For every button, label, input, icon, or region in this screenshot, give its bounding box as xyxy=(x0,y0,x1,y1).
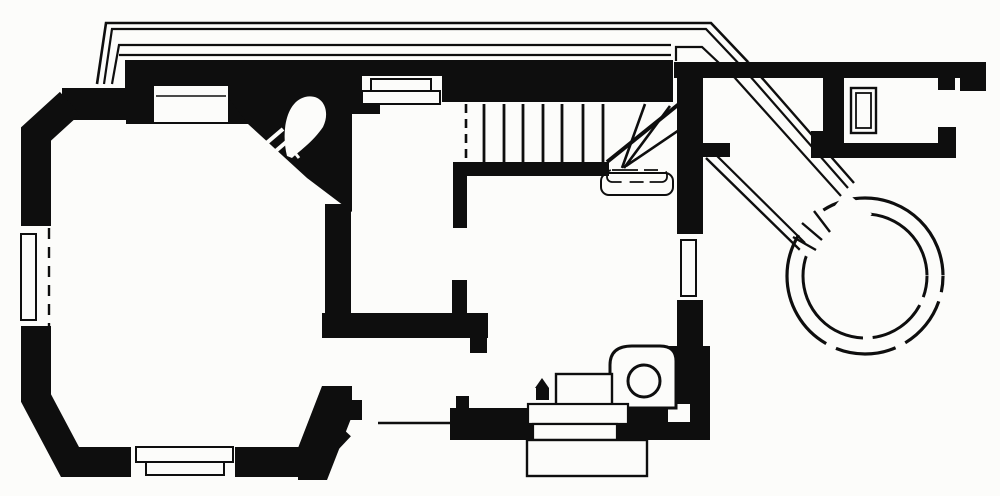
under-stair-wall xyxy=(453,162,609,176)
wing-top-wall xyxy=(674,62,986,78)
turret xyxy=(787,192,943,354)
left-window-frame xyxy=(21,234,36,320)
partition-stub-down xyxy=(470,338,487,353)
scullery-bench xyxy=(556,374,612,407)
right-wall-lower xyxy=(677,300,703,350)
entrance-step-lower xyxy=(362,91,440,104)
walls xyxy=(36,60,986,480)
small-fitting-top xyxy=(535,378,549,388)
wing-corner-stub xyxy=(938,127,956,158)
garden-door-right-stub xyxy=(456,396,469,410)
entrance-step-upper xyxy=(371,79,431,91)
fireplace-recess xyxy=(154,86,228,122)
bottom-window-sill-inner xyxy=(146,462,224,475)
wing-bottom-wall xyxy=(811,143,956,158)
wing-top-stub xyxy=(938,78,955,90)
back-platform-lower xyxy=(533,424,617,440)
floor-plan-drawing xyxy=(0,0,1000,496)
passage-lower-wall-inner xyxy=(712,151,806,244)
small-fitting xyxy=(536,388,549,400)
staircase xyxy=(453,104,688,228)
right-window-frame xyxy=(681,240,696,296)
wing-fixture-inner xyxy=(856,93,871,128)
wing-fixtures xyxy=(851,88,876,133)
floor-plan-sheet xyxy=(0,0,1000,496)
copper-fixture xyxy=(610,346,676,408)
right-wall-upper xyxy=(677,78,703,234)
back-platform-upper xyxy=(528,404,628,424)
bottom-window-sill-outer xyxy=(136,447,233,462)
wing-top-wall-end-cap xyxy=(960,78,986,91)
under-stair-cupboard-inner xyxy=(607,170,667,182)
partition-wall-vertical xyxy=(325,204,351,316)
partition-stub-up xyxy=(452,280,467,315)
garden-door-left-step xyxy=(340,400,362,420)
right-wall-stub xyxy=(703,143,730,157)
stair-treads xyxy=(484,104,603,166)
partition-wall-horizontal xyxy=(322,313,488,338)
under-stair-wall-stub xyxy=(453,162,467,228)
back-bottom-step xyxy=(527,440,647,476)
under-stair-cupboard xyxy=(601,173,673,195)
garden-door-right-pier xyxy=(450,408,532,440)
passage-lower-wall-outer xyxy=(706,158,800,250)
